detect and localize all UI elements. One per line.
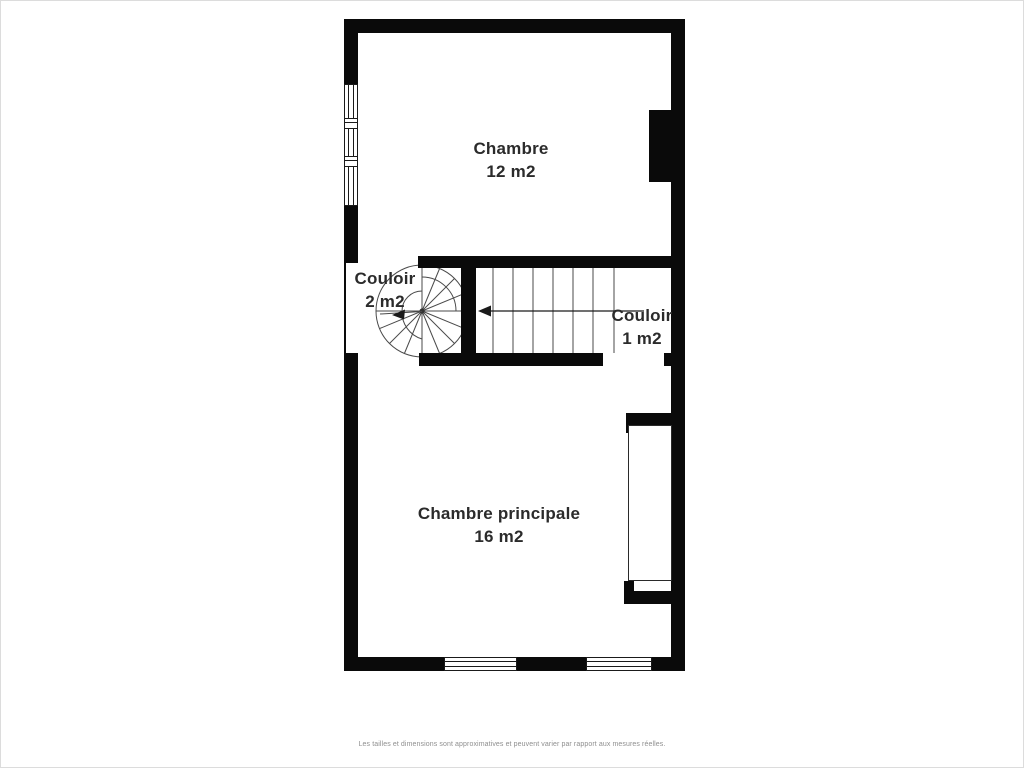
room-area: 2 m2: [329, 290, 441, 313]
window-glass-line: [445, 661, 516, 662]
window-bottom-2: [586, 657, 652, 671]
chimney-block: [649, 110, 672, 182]
wall-bottom-right: [652, 657, 685, 671]
closet-bottom-stub: [624, 591, 673, 604]
wall-stair-divider: [461, 256, 476, 366]
room-label-couloir-1: Couloir 1 m2: [583, 304, 701, 350]
room-label-couloir-2: Couloir 2 m2: [329, 267, 441, 313]
window-glass-line: [445, 666, 516, 667]
wall-left-upper: [344, 19, 358, 84]
window-left-glass-line: [348, 85, 349, 205]
closet-top-stub: [626, 413, 673, 425]
room-label-chambre-principale: Chambre principale 16 m2: [399, 502, 599, 548]
room-name: Chambre: [411, 137, 611, 160]
room-name: Chambre principale: [399, 502, 599, 525]
room-name: Couloir: [329, 267, 441, 290]
wall-bottom-left: [344, 657, 444, 671]
room-label-chambre: Chambre 12 m2: [411, 137, 611, 183]
window-left-glass-line: [353, 85, 354, 205]
wall-top: [344, 19, 685, 33]
wall-corridor-top: [418, 256, 685, 268]
window-glass-line: [587, 661, 651, 662]
window-left-divider: [345, 156, 357, 167]
wall-bottom-mid: [517, 657, 586, 671]
room-area: 12 m2: [411, 160, 611, 183]
wall-corridor-bottom-stub: [664, 353, 685, 366]
window-glass-line: [587, 666, 651, 667]
room-area: 16 m2: [399, 525, 599, 548]
closet-panel: [628, 425, 672, 581]
window-bottom-1: [444, 657, 517, 671]
wall-left-mid: [344, 206, 358, 263]
wall-corridor-bottom: [419, 353, 603, 366]
wall-left-lower: [344, 353, 358, 671]
floor-plan-page: Chambre 12 m2 Couloir 2 m2 Couloir 1 m2 …: [0, 0, 1024, 768]
room-area: 1 m2: [583, 327, 701, 350]
window-left-divider: [345, 118, 357, 129]
room-name: Couloir: [583, 304, 701, 327]
closet-bottom-stub-tick: [624, 581, 634, 591]
window-left: [344, 84, 358, 206]
disclaimer-text: Les tailles et dimensions sont approxima…: [1, 741, 1023, 748]
